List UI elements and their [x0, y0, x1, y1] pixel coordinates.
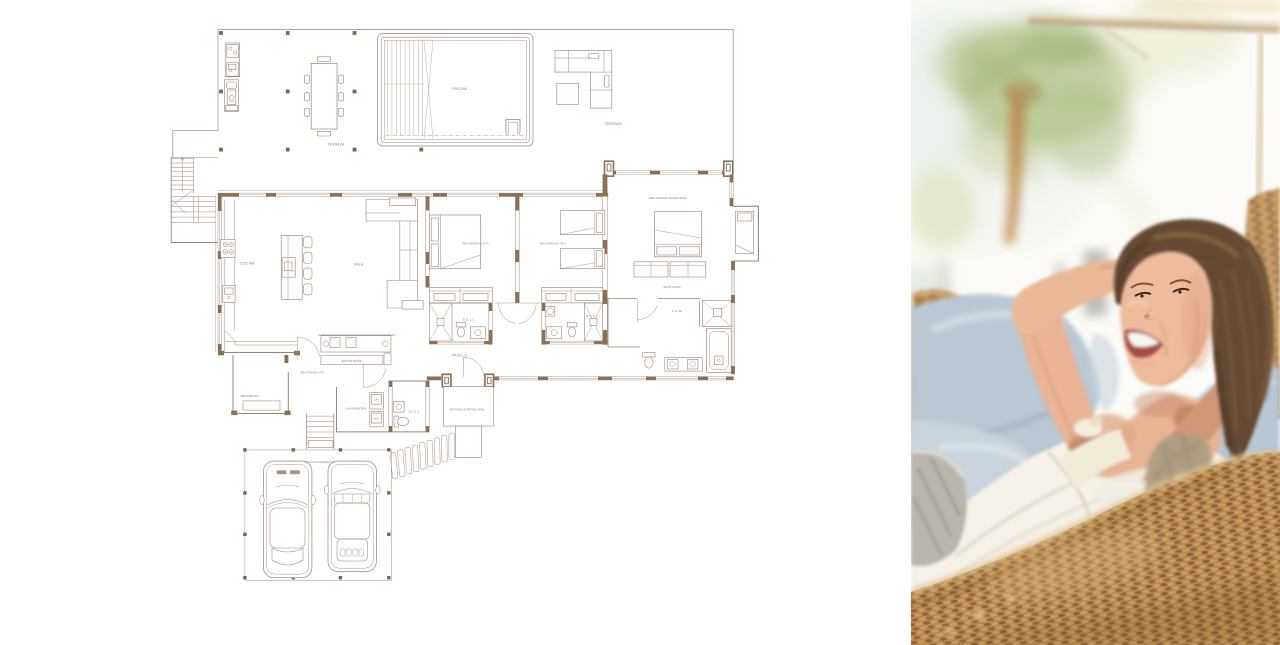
svg-text:ENTRADA Nº2: ENTRADA Nº2 [301, 371, 324, 375]
svg-text:RECÁMARA PRINCIPAL: RECÁMARA PRINCIPAL [649, 196, 688, 200]
svg-text:TERRAZA: TERRAZA [327, 143, 345, 147]
svg-text:ENTRADA PRINCIPAL: ENTRADA PRINCIPAL [450, 408, 486, 412]
svg-text:VESTIDOR: VESTIDOR [663, 285, 681, 289]
svg-text:LAVANDERÍA: LAVANDERÍA [345, 407, 366, 411]
svg-text:RECÁMARA Nº2: RECÁMARA Nº2 [463, 242, 489, 246]
svg-text:S.S.9: S.S.9 [586, 314, 595, 318]
svg-text:TERRAZA: TERRAZA [605, 122, 623, 126]
svg-text:SALA: SALA [354, 263, 364, 267]
svg-text:SEC: SEC [374, 418, 380, 421]
svg-text:DESPENSA: DESPENSA [241, 394, 261, 398]
svg-text:RECÁMARA Nº3: RECÁMARA Nº3 [540, 242, 566, 246]
svg-text:PISCINA: PISCINA [453, 87, 468, 91]
svg-text:S.S.10: S.S.10 [672, 309, 683, 313]
svg-text:PASILLO: PASILLO [452, 354, 467, 358]
svg-text:1/2 S.S.: 1/2 S.S. [408, 410, 420, 414]
svg-text:LAV: LAV [374, 399, 379, 402]
svg-text:S.S.11: S.S.11 [463, 317, 473, 321]
svg-text:ESTANTERÍA: ESTANTERÍA [342, 359, 362, 363]
svg-text:COCINA: COCINA [241, 262, 256, 266]
